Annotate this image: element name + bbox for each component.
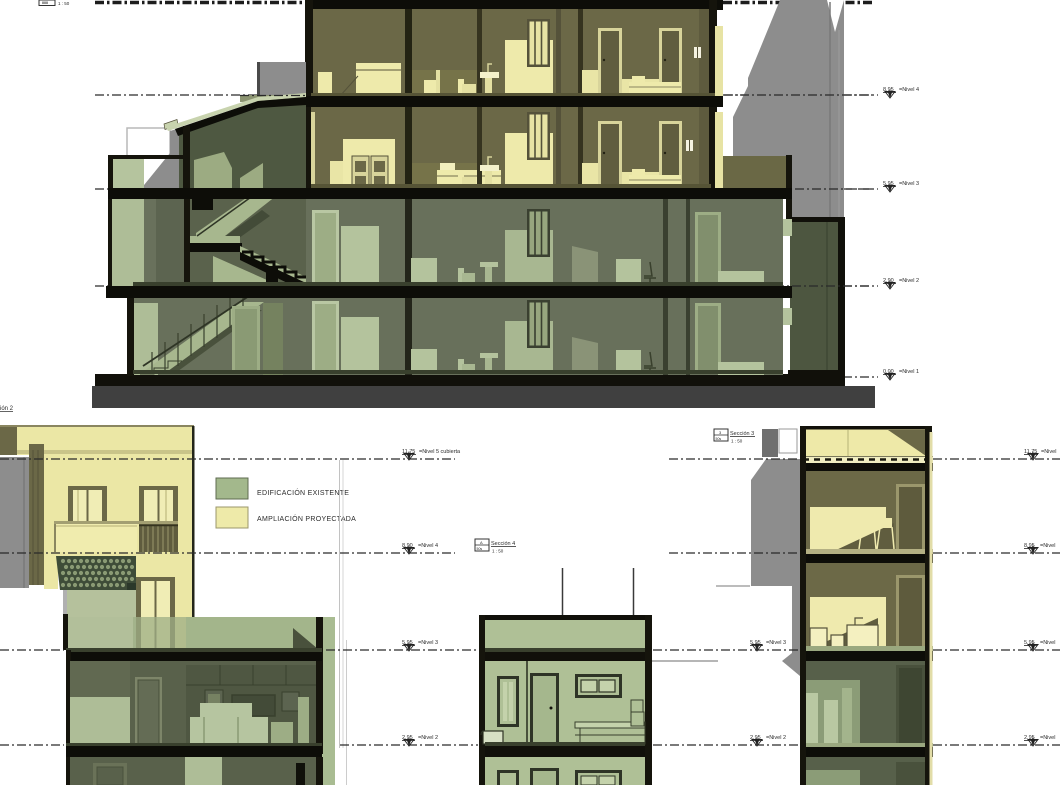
svg-text:=Nivel 4: =Nivel 4	[418, 543, 438, 549]
svg-text:=Nivel: =Nivel	[1041, 449, 1056, 455]
svg-text:ión 2: ión 2	[0, 406, 14, 412]
svg-text:=Nivel 5 cubierta: =Nivel 5 cubierta	[419, 449, 461, 455]
svg-text:Sección 4: Sección 4	[491, 541, 515, 547]
svg-text:1 : 50: 1 : 50	[492, 549, 504, 554]
svg-text:AMPLIACIÓN PROYECTADA: AMPLIACIÓN PROYECTADA	[257, 514, 356, 523]
svg-text:=Nivel: =Nivel	[1040, 640, 1055, 646]
svg-text:=Nivel 2: =Nivel 2	[766, 735, 786, 741]
svg-text:=Nivel 3: =Nivel 3	[899, 181, 919, 187]
svg-text:=Nivel 4: =Nivel 4	[899, 87, 919, 93]
svg-text:=Nivel 2: =Nivel 2	[418, 735, 438, 741]
svg-text:=Nivel 3: =Nivel 3	[766, 640, 786, 646]
svg-text:1 : 50: 1 : 50	[58, 1, 70, 6]
svg-text:=Nivel 1: =Nivel 1	[899, 369, 919, 375]
svg-text:50s: 50s	[716, 437, 722, 441]
svg-text:A: A	[480, 540, 483, 545]
svg-text:50s: 50s	[477, 547, 483, 551]
svg-text:EDIFICACIÓN EXISTENTE: EDIFICACIÓN EXISTENTE	[257, 488, 349, 497]
svg-text:=Nivel: =Nivel	[1040, 735, 1055, 741]
svg-text:=Nivel 2: =Nivel 2	[899, 278, 919, 284]
svg-text:1 : 50: 1 : 50	[731, 439, 743, 444]
svg-text:=Nivel 3: =Nivel 3	[418, 640, 438, 646]
svg-text:Sección 3: Sección 3	[730, 431, 754, 437]
svg-text:=Nivel: =Nivel	[1040, 543, 1055, 549]
